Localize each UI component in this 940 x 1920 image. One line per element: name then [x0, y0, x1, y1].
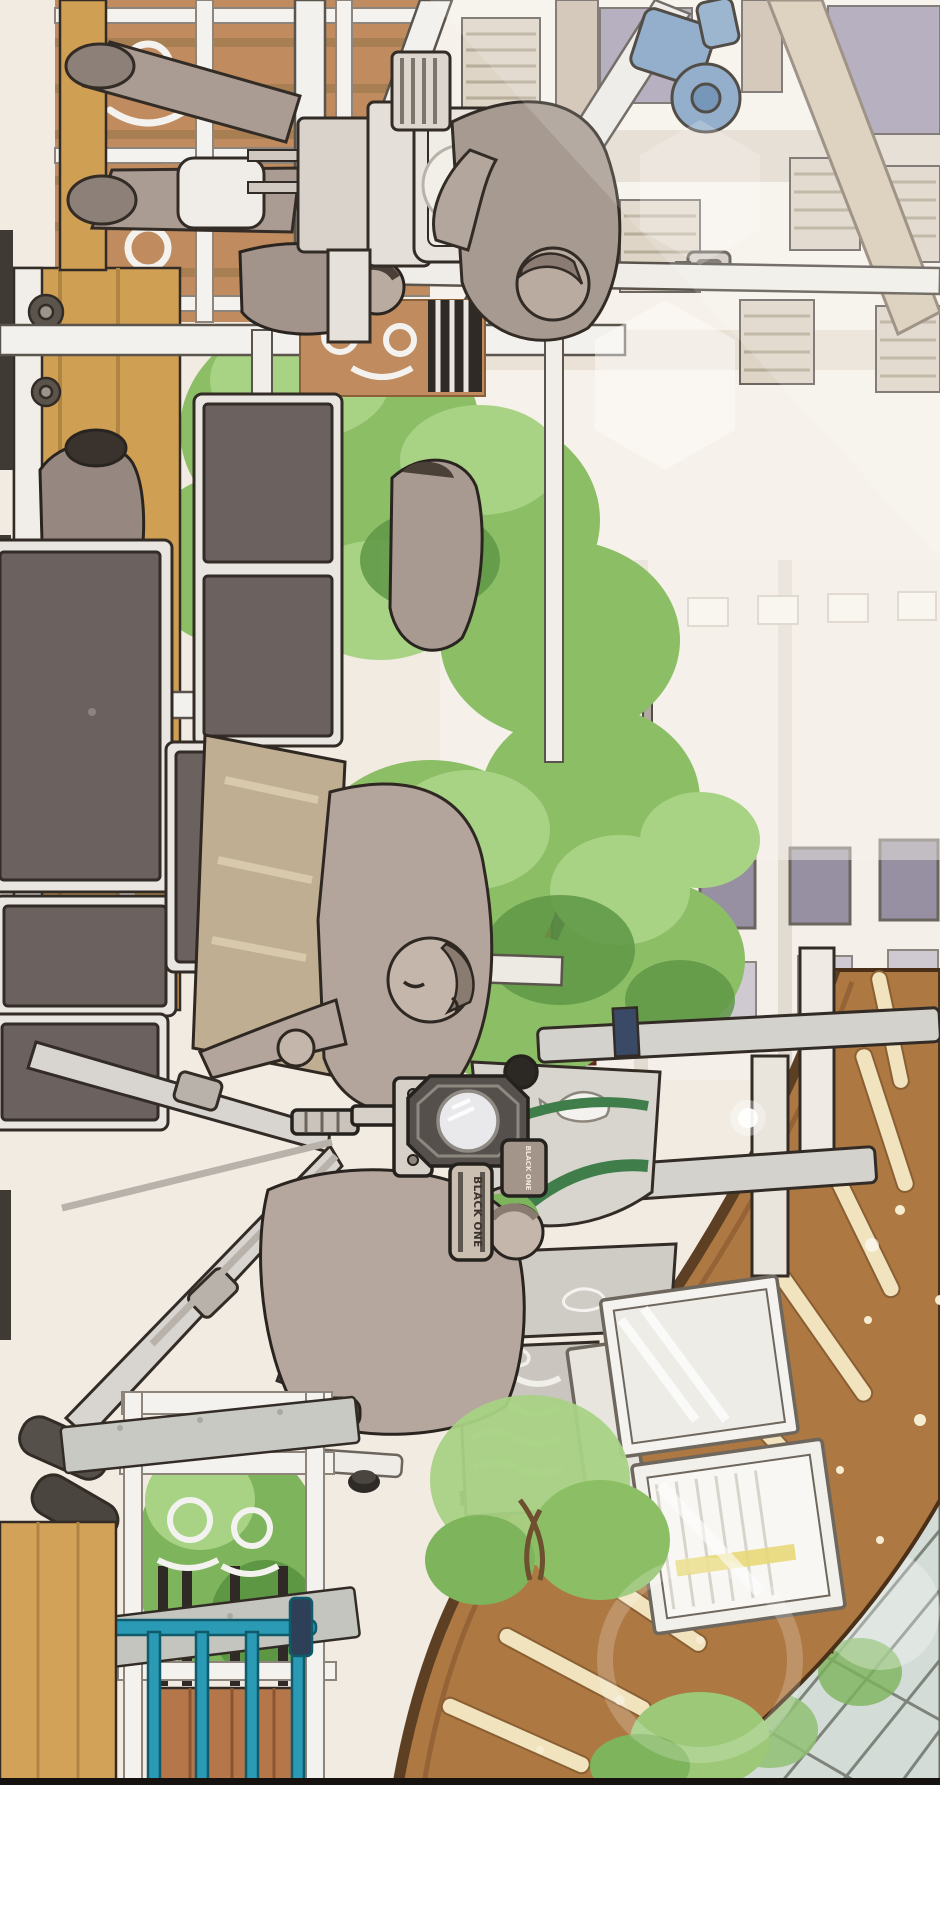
webtoon-panel: BLACK ONE BLACK ONE [0, 0, 940, 1920]
timber-panel-bottom-left [0, 1522, 116, 1784]
illustration: BLACK ONE BLACK ONE [0, 0, 940, 1920]
camera-brand-label-side: BLACK ONE [524, 1146, 532, 1191]
panel-frame [0, 1778, 940, 1920]
flag-panel-lower [0, 896, 176, 1016]
focus-unit [392, 52, 450, 130]
camera-grip: BLACK ONE [450, 1164, 492, 1260]
flag-panel-large [0, 540, 172, 892]
crew-crouch-right [390, 460, 482, 650]
camera-brand-label: BLACK ONE [471, 1176, 483, 1248]
camera-side-unit: BLACK ONE [502, 1140, 546, 1196]
flag-panel-pair [194, 394, 342, 746]
